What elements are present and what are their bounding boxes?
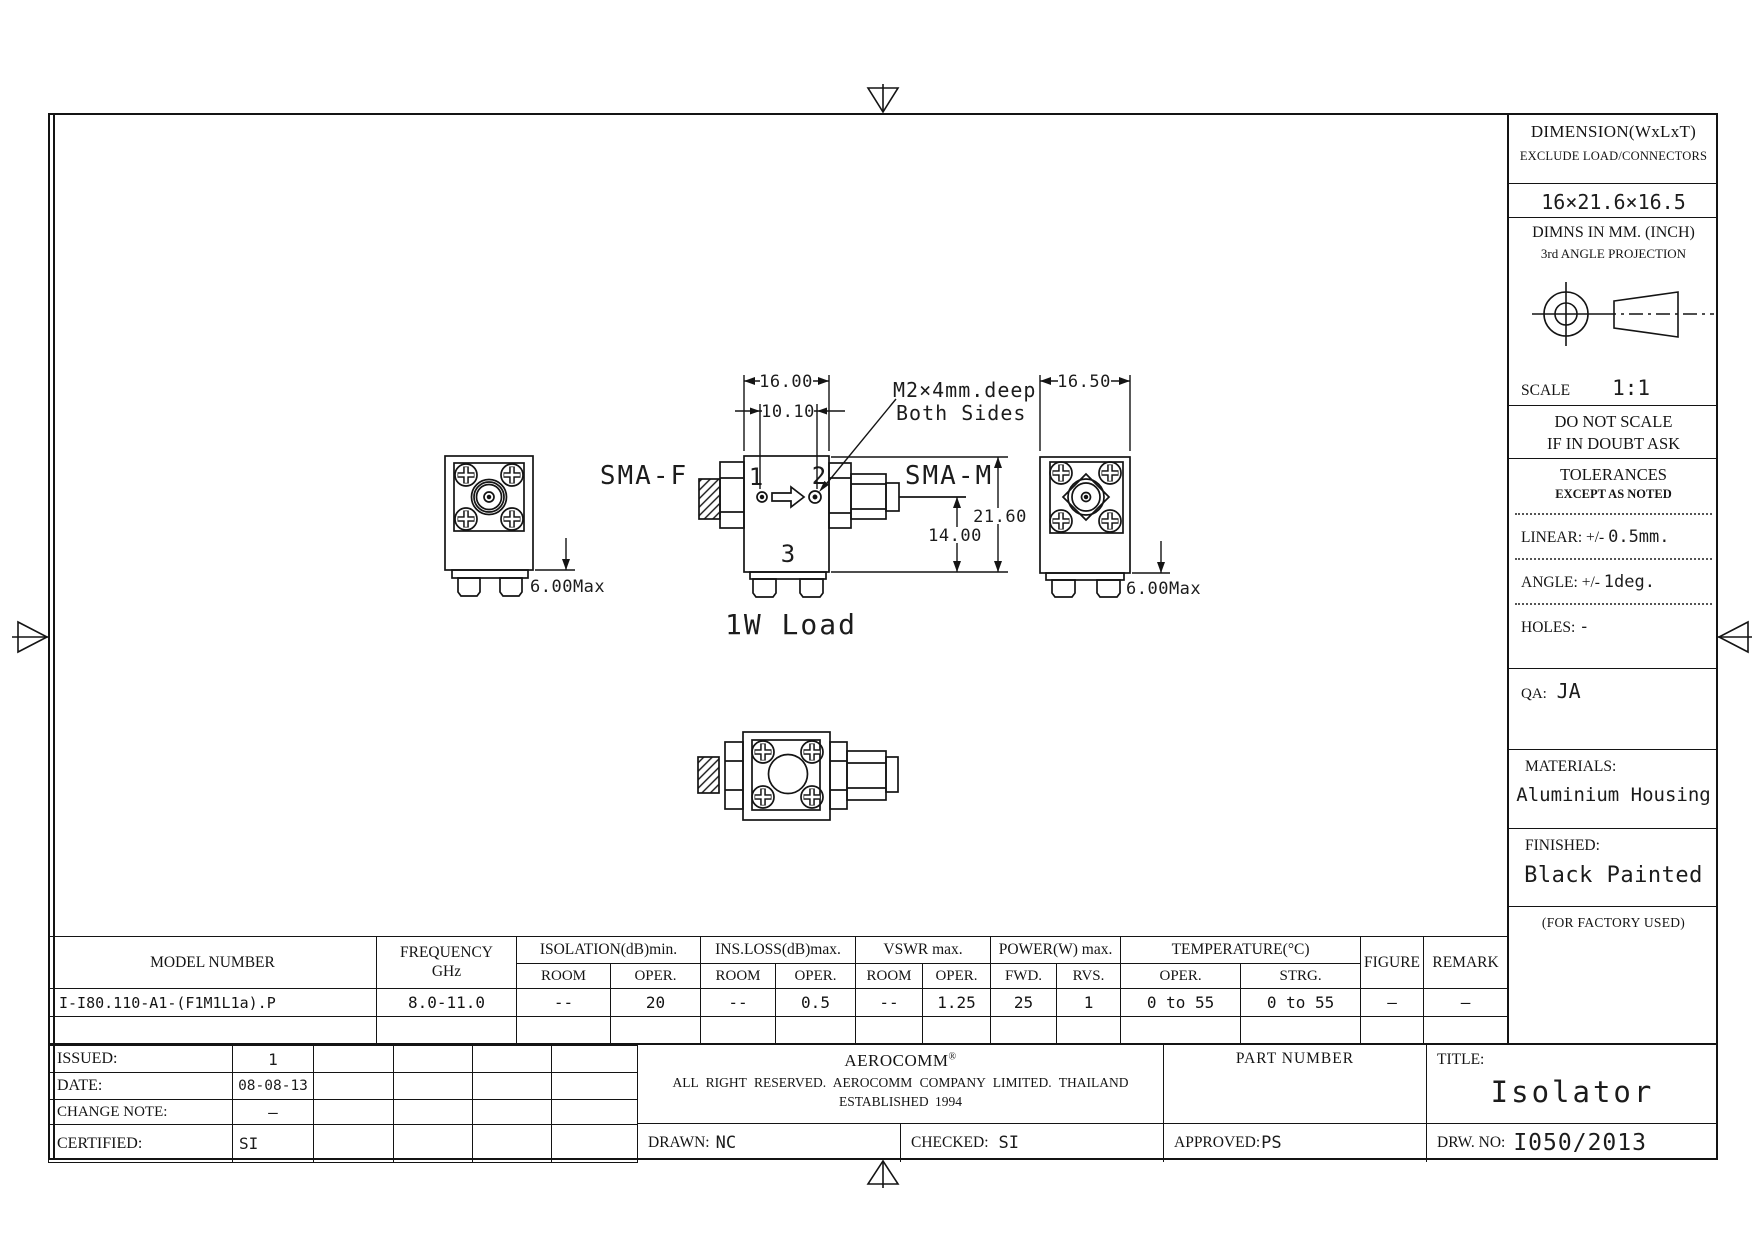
approved-label: APPROVED: bbox=[1174, 1134, 1260, 1152]
qa-label: QA: bbox=[1521, 686, 1547, 702]
col-header-frequency: FREQUENCY GHz bbox=[377, 937, 517, 989]
dotted-rule bbox=[1515, 603, 1712, 605]
sidebar-factory: (FOR FACTORY USED) bbox=[1509, 907, 1718, 1043]
drawing-number-cell: DRW. NO: I050/2013 bbox=[1426, 1124, 1718, 1162]
subheader-rvs: RVS. bbox=[1057, 964, 1121, 989]
col-header-vswr: VSWR max. bbox=[856, 937, 991, 964]
angle-value: 1deg. bbox=[1604, 572, 1655, 592]
tolerances-title: TOLERANCES bbox=[1509, 459, 1718, 485]
company-block: AEROCOMM® ALL RIGHT RESERVED. AEROCOMM C… bbox=[637, 1045, 1163, 1124]
cell-remark: — bbox=[1424, 989, 1508, 1017]
col-header-temperature: TEMPERATURE(°C) bbox=[1121, 937, 1361, 964]
cell-model: I-I80.110-A1-(F1M1L1a).P bbox=[49, 989, 377, 1017]
sidebar-dimension-header: DIMENSION(WxLxT) EXCLUDE LOAD/CONNECTORS bbox=[1509, 113, 1718, 184]
sidebar-warning: DO NOT SCALE IF IN DOUBT ASK bbox=[1509, 406, 1718, 459]
sidebar-dimension-value: 16×21.6×16.5 bbox=[1509, 184, 1718, 218]
warning-line-1: DO NOT SCALE bbox=[1509, 411, 1718, 433]
holes-label: HOLES: bbox=[1521, 619, 1575, 636]
company-line-2: ALL RIGHT RESERVED. AEROCOMM COMPANY LIM… bbox=[638, 1075, 1163, 1091]
sidebar: DIMENSION(WxLxT) EXCLUDE LOAD/CONNECTORS… bbox=[1507, 113, 1718, 1043]
approved-cell: APPROVED: PS bbox=[1163, 1124, 1426, 1162]
certified-value: SI bbox=[233, 1125, 314, 1163]
cell-temp-strg: 0 to 55 bbox=[1241, 989, 1361, 1017]
cell-isolation-room: -- bbox=[517, 989, 611, 1017]
cell-vswr-oper: 1.25 bbox=[923, 989, 991, 1017]
part-number-cell: PART NUMBER bbox=[1163, 1045, 1426, 1124]
sidebar-projection: DIMNS IN MM. (INCH) 3rd ANGLE PROJECTION… bbox=[1509, 218, 1718, 406]
title-block: ISSUED: 1 DATE: 08-08-13 CHANGE NOTE: — … bbox=[48, 1043, 1718, 1160]
finished-label: FINISHED: bbox=[1509, 829, 1718, 855]
cell-temp-oper: 0 to 55 bbox=[1121, 989, 1241, 1017]
cell-power-rvs: 1 bbox=[1057, 989, 1121, 1017]
sidebar-finished: FINISHED: Black Painted bbox=[1509, 829, 1718, 907]
registered-mark-icon: ® bbox=[949, 1051, 957, 1062]
col-header-isolation: ISOLATION(dB)min. bbox=[517, 937, 701, 964]
linear-label: LINEAR: +/- bbox=[1521, 529, 1604, 546]
materials-value: Aluminium Housing bbox=[1509, 784, 1718, 806]
approved-value: PS bbox=[1261, 1133, 1281, 1153]
dotted-rule bbox=[1515, 558, 1712, 560]
title-label: TITLE: bbox=[1437, 1051, 1484, 1069]
scale-value: 1:1 bbox=[1612, 376, 1650, 400]
subheader-fwd: FWD. bbox=[991, 964, 1057, 989]
finished-value: Black Painted bbox=[1509, 863, 1718, 888]
cell-vswr-room: -- bbox=[856, 989, 923, 1017]
drawn-value: NC bbox=[716, 1133, 736, 1153]
col-header-ins-loss: INS.LOSS(dB)max. bbox=[701, 937, 856, 964]
issued-value: 1 bbox=[233, 1046, 314, 1073]
warning-line-2: IF IN DOUBT ASK bbox=[1509, 433, 1718, 455]
dimension-title: DIMENSION(WxLxT) bbox=[1509, 113, 1718, 142]
spec-data-row: I-I80.110-A1-(F1M1L1a).P 8.0-11.0 -- 20 … bbox=[49, 989, 1508, 1017]
change-note-label: CHANGE NOTE: bbox=[49, 1100, 233, 1125]
company-name: AEROCOMM® bbox=[638, 1045, 1163, 1071]
holes-value: - bbox=[1579, 617, 1589, 637]
change-note-value: — bbox=[233, 1100, 314, 1125]
subheader-oper: OPER. bbox=[923, 964, 991, 989]
cell-ins-loss-oper: 0.5 bbox=[776, 989, 856, 1017]
title-cell: TITLE: Isolator bbox=[1426, 1045, 1718, 1124]
date-value: 08-08-13 bbox=[233, 1073, 314, 1100]
drawing-sheet: 6.00Max 1 2 3 bbox=[0, 0, 1754, 1240]
cell-power-fwd: 25 bbox=[991, 989, 1057, 1017]
col-header-power: POWER(W) max. bbox=[991, 937, 1121, 964]
dimension-value: 16×21.6×16.5 bbox=[1509, 184, 1718, 214]
spec-empty-row bbox=[49, 1017, 1508, 1044]
materials-label: MATERIALS: bbox=[1509, 750, 1718, 776]
title-value: Isolator bbox=[1427, 1075, 1718, 1109]
linear-value: 0.5mm. bbox=[1608, 527, 1669, 547]
checked-label: CHECKED: bbox=[911, 1134, 989, 1152]
sidebar-materials: MATERIALS: Aluminium Housing bbox=[1509, 750, 1718, 829]
centering-mark-bottom bbox=[868, 1161, 898, 1188]
drw-no-value: I050/2013 bbox=[1513, 1130, 1647, 1156]
part-number-label: PART NUMBER bbox=[1164, 1045, 1426, 1068]
date-label: DATE: bbox=[49, 1073, 233, 1100]
centering-mark-left bbox=[12, 622, 50, 652]
centering-mark-top bbox=[868, 84, 898, 112]
cell-frequency: 8.0-11.0 bbox=[377, 989, 517, 1017]
drawn-label: DRAWN: bbox=[648, 1134, 710, 1152]
subheader-room: ROOM bbox=[517, 964, 611, 989]
dotted-rule bbox=[1515, 513, 1712, 515]
scale-label: SCALE bbox=[1521, 382, 1570, 400]
col-header-model: MODEL NUMBER bbox=[49, 937, 377, 989]
projection-line: 3rd ANGLE PROJECTION bbox=[1509, 246, 1718, 262]
drw-no-label: DRW. NO: bbox=[1437, 1134, 1505, 1152]
tolerances-subtitle: EXCEPT AS NOTED bbox=[1509, 487, 1718, 502]
certified-label: CERTIFIED: bbox=[49, 1125, 233, 1163]
factory-note: (FOR FACTORY USED) bbox=[1509, 907, 1718, 931]
units-line: DIMNS IN MM. (INCH) bbox=[1509, 218, 1718, 242]
checked-cell: CHECKED: SI bbox=[900, 1124, 1163, 1162]
checked-value: SI bbox=[999, 1133, 1019, 1153]
cell-figure: — bbox=[1361, 989, 1424, 1017]
dimension-subtitle: EXCLUDE LOAD/CONNECTORS bbox=[1509, 149, 1718, 164]
drawn-cell: DRAWN: NC bbox=[637, 1124, 900, 1162]
cell-isolation-oper: 20 bbox=[611, 989, 701, 1017]
company-line-3: ESTABLISHED 1994 bbox=[638, 1094, 1163, 1110]
centering-mark-right bbox=[1716, 622, 1752, 652]
subheader-oper: OPER. bbox=[776, 964, 856, 989]
subheader-oper: OPER. bbox=[1121, 964, 1241, 989]
subheader-room: ROOM bbox=[856, 964, 923, 989]
col-header-figure: FIGURE bbox=[1361, 937, 1424, 989]
cell-ins-loss-room: -- bbox=[701, 989, 776, 1017]
sidebar-qa: QA: JA bbox=[1509, 669, 1718, 750]
qa-value: JA bbox=[1557, 679, 1581, 703]
col-header-remark: REMARK bbox=[1424, 937, 1508, 989]
subheader-strg: STRG. bbox=[1241, 964, 1361, 989]
issued-label: ISSUED: bbox=[49, 1046, 233, 1073]
angle-label: ANGLE: +/- bbox=[1521, 574, 1600, 591]
third-angle-projection-icon bbox=[1511, 268, 1716, 360]
spec-table: MODEL NUMBER FREQUENCY GHz ISOLATION(dB)… bbox=[48, 936, 1508, 1044]
subheader-oper: OPER. bbox=[611, 964, 701, 989]
subheader-room: ROOM bbox=[701, 964, 776, 989]
sidebar-tolerances: TOLERANCES EXCEPT AS NOTED LINEAR: +/- 0… bbox=[1509, 459, 1718, 669]
revision-grid: ISSUED: 1 DATE: 08-08-13 CHANGE NOTE: — … bbox=[48, 1045, 638, 1163]
